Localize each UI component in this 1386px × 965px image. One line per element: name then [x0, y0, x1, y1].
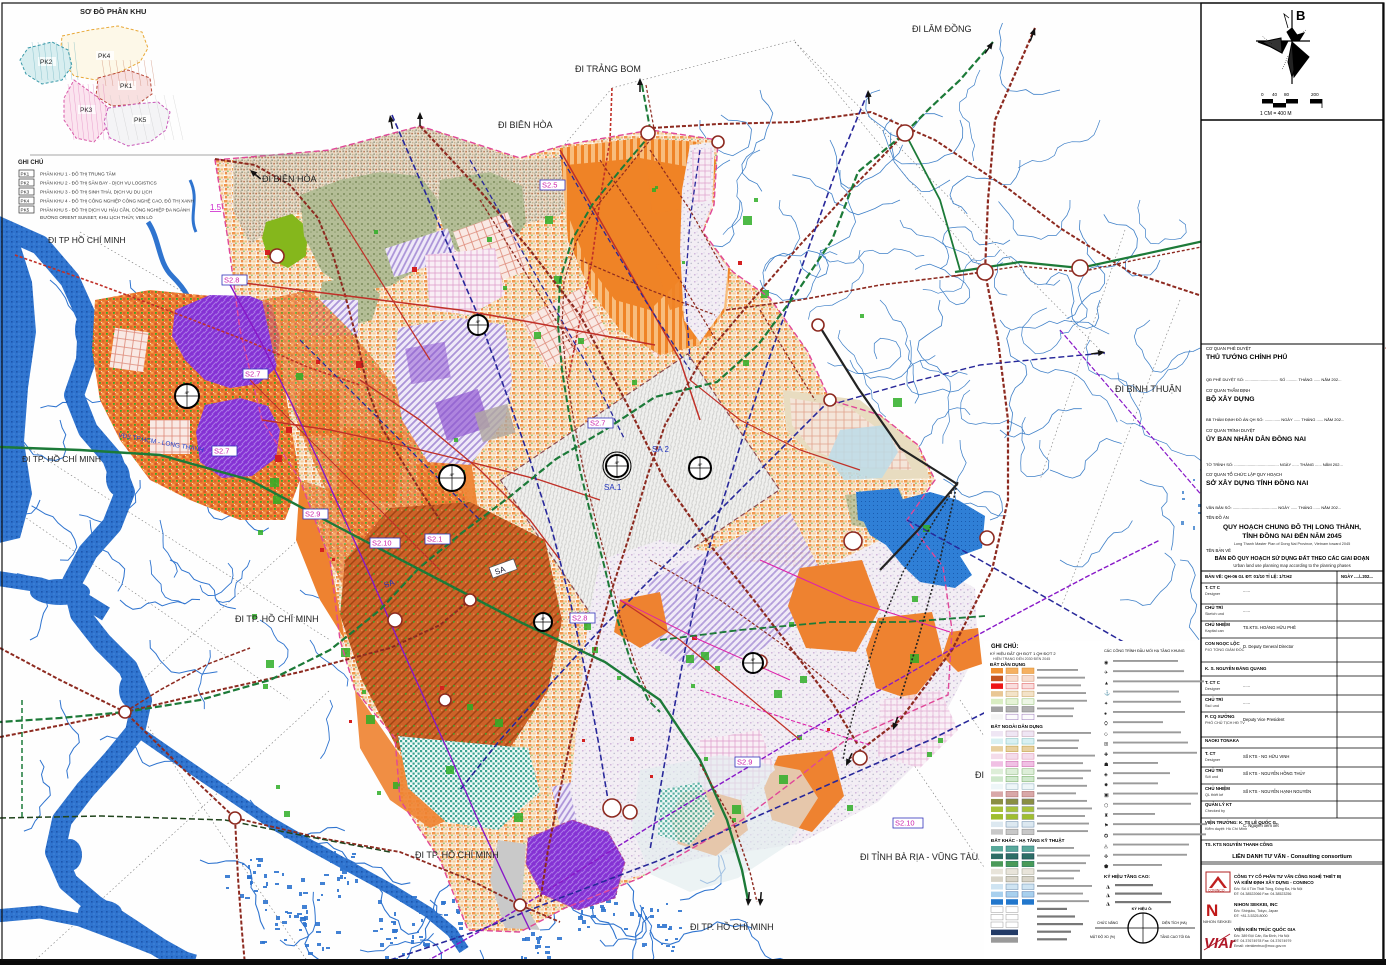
svg-text:ĐT: +81.3.5325.8000: ĐT: +81.3.5325.8000	[1234, 914, 1267, 918]
svg-text:◮: ◮	[1106, 884, 1110, 890]
svg-text:Designer: Designer	[1205, 592, 1221, 596]
svg-text:Urban land use planning map ac: Urban land use planning map according to…	[1233, 563, 1350, 568]
svg-text:PK3: PK3	[21, 190, 30, 195]
svg-text:KÝ HIỆU Ô:: KÝ HIỆU Ô:	[1132, 906, 1153, 911]
svg-text:⚓: ⚓	[1104, 690, 1110, 697]
svg-text:Long Thanh Master Plan of Dong: Long Thanh Master Plan of Dong Nai Provi…	[1234, 542, 1350, 546]
svg-text:CƠ QUAN TRÌNH DUYỆT: CƠ QUAN TRÌNH DUYỆT	[1206, 428, 1256, 433]
svg-text:4F: 4F	[541, 616, 546, 621]
svg-text:NIHON SEKKEI: NIHON SEKKEI	[1203, 919, 1231, 924]
svg-text:VĂN BẢN SỐ: ..................: VĂN BẢN SỐ: ............................…	[1206, 505, 1341, 510]
svg-text:✦: ✦	[1104, 701, 1108, 707]
svg-text:BẢN VẼ: QH-06 GI. ĐT: 01/10: BẢN VẼ: QH-06 GI. ĐT: 01/10 TỈ LỆ: 1/T.H…	[1205, 574, 1292, 579]
svg-text:CHỦ NHIỆM: CHỦ NHIỆM	[1205, 786, 1230, 791]
svg-text:0: 0	[1261, 92, 1264, 97]
svg-text:⬟: ⬟	[1104, 864, 1109, 870]
svg-text:ĐI TRẢNG BOM: ĐI TRẢNG BOM	[575, 63, 641, 74]
svg-text:PK1: PK1	[21, 172, 30, 177]
svg-text:PHÂN KHU 1 - ĐÔ THỊ TRUNG TÂM: PHÂN KHU 1 - ĐÔ THỊ TRUNG TÂM	[40, 171, 116, 177]
svg-text:CHỦ TRÌ: CHỦ TRÌ	[1205, 605, 1223, 610]
svg-text:▣: ▣	[1104, 793, 1109, 799]
svg-text:......: ......	[1243, 608, 1250, 613]
svg-text:PHÂN KHU 3 - ĐÔ THỊ SINH THÁI,: PHÂN KHU 3 - ĐÔ THỊ SINH THÁI, DỊCH VỤ D…	[40, 189, 152, 195]
svg-text:CHỦ TRÌ: CHỦ TRÌ	[1205, 768, 1223, 773]
svg-text:ĐI LÂM ĐỒNG: ĐI LÂM ĐỒNG	[912, 23, 972, 34]
svg-text:T. CT C: T. CT C	[1205, 680, 1221, 685]
svg-text:4F: 4F	[450, 472, 455, 477]
svg-text:DIỆN TÍCH (HA): DIỆN TÍCH (HA)	[1162, 920, 1187, 925]
svg-text:ĐI TP HỒ CHÍ MINH: ĐI TP HỒ CHÍ MINH	[48, 234, 126, 245]
svg-text:S2.7: S2.7	[590, 419, 605, 428]
svg-text:KÝ HIỆU TẦNG CAO:: KÝ HIỆU TẦNG CAO:	[1104, 872, 1150, 879]
svg-text:MẬT ĐỘ XD (%): MẬT ĐỘ XD (%)	[1090, 934, 1115, 939]
svg-text:B: B	[1296, 8, 1305, 23]
svg-text:T. CT: T. CT	[1205, 751, 1216, 756]
svg-text:C. Nguyễn xem xét: C. Nguyễn xem xét	[1243, 823, 1279, 828]
svg-text:1.5: 1.5	[210, 203, 222, 212]
svg-text:TÊN ĐỒ ÁN: TÊN ĐỒ ÁN	[1206, 515, 1229, 520]
svg-text:Kapital can: Kapital can	[1205, 629, 1224, 633]
svg-text:PHÂN KHU 2 - ĐÔ THỊ SÂN BAY -: PHÂN KHU 2 - ĐÔ THỊ SÂN BAY - DỊCH VỤ LO…	[40, 180, 157, 186]
svg-text:ĐI TỈNH BÀ RỊA - VŨNG TÀU: ĐI TỈNH BÀ RỊA - VŨNG TÀU	[860, 851, 978, 862]
svg-text:NGÀY ..../..202...: NGÀY ..../..202...	[1341, 574, 1373, 579]
svg-text:PHÂN KHU 4 - ĐÔ THỊ CÔNG NGHIỆ: PHÂN KHU 4 - ĐÔ THỊ CÔNG NGHIỆP CÔNG NGH…	[40, 197, 194, 204]
svg-text:◇: ◇	[1104, 731, 1108, 737]
svg-text:SA 2: SA 2	[652, 445, 669, 454]
svg-text:PK2: PK2	[21, 181, 30, 186]
svg-text:GHI CHÚ: GHI CHÚ	[18, 159, 43, 166]
svg-text:T. CT C: T. CT C	[1205, 585, 1221, 590]
svg-text:S2.10: S2.10	[895, 819, 915, 828]
svg-text:P.IO TỔNG GIÁM ĐỐC: P.IO TỔNG GIÁM ĐỐC	[1205, 647, 1245, 652]
svg-text:QUẢN LÝ KT: QUẢN LÝ KT	[1205, 802, 1232, 807]
svg-text:80: 80	[1284, 92, 1290, 97]
svg-text:VIỆN KIẾN TRÚC QUỐC GIA: VIỆN KIẾN TRÚC QUỐC GIA	[1234, 925, 1296, 932]
svg-text:1 CM = 400 M: 1 CM = 400 M	[1260, 111, 1292, 117]
svg-text:☗: ☗	[1104, 762, 1109, 768]
svg-text:BỘ XÂY DỰNG: BỘ XÂY DỰNG	[1206, 394, 1255, 403]
svg-text:200: 200	[1311, 92, 1319, 97]
svg-text:PK1: PK1	[120, 83, 133, 90]
svg-text:......: ......	[1243, 588, 1250, 593]
svg-text:NAOKI TONAKA: NAOKI TONAKA	[1205, 738, 1240, 743]
svg-text:S2.7: S2.7	[214, 447, 229, 456]
svg-text:✹: ✹	[1104, 782, 1108, 788]
svg-text:◮: ◮	[1106, 893, 1110, 899]
svg-text:CHỦ NHIỆM: CHỦ NHIỆM	[1205, 622, 1230, 627]
svg-text:THỦ TƯỚNG CHÍNH PHỦ: THỦ TƯỚNG CHÍNH PHỦ	[1206, 352, 1287, 361]
svg-text:VIAr: VIAr	[1204, 935, 1236, 952]
svg-text:✈: ✈	[1104, 670, 1108, 676]
svg-text:GHI CHÚ:: GHI CHÚ:	[991, 643, 1018, 650]
svg-text:Designer: Designer	[1205, 687, 1221, 691]
svg-text:PK5: PK5	[134, 117, 147, 124]
svg-text:S2.9: S2.9	[737, 758, 752, 767]
svg-text:TS. KTS NGUYỄN THANH CÔNG: TS. KTS NGUYỄN THANH CÔNG	[1205, 842, 1273, 847]
svg-text:Số KTS - NGUYỄN HỒNG THỦY: Số KTS - NGUYỄN HỒNG THỦY	[1243, 771, 1305, 776]
svg-text:PK4: PK4	[21, 199, 30, 204]
svg-text:40: 40	[1272, 92, 1278, 97]
svg-text:K. S. NGUYỄN ĐĂNG QUANG: K. S. NGUYỄN ĐĂNG QUANG	[1205, 666, 1267, 671]
svg-text:QĐ PHÊ DUYỆT SỐ: .............: QĐ PHÊ DUYỆT SỐ: .......................…	[1206, 377, 1341, 382]
svg-text:✪: ✪	[1104, 833, 1108, 839]
svg-text:CÔNG TY CỔ PHẦN TƯ VẤN CÔNG NG: CÔNG TY CỔ PHẦN TƯ VẤN CÔNG NGHỆ THIẾT B…	[1234, 874, 1341, 879]
svg-text:N: N	[1206, 901, 1218, 920]
svg-text:◉: ◉	[1104, 660, 1109, 666]
svg-text:TÊN BẢN VẼ: TÊN BẢN VẼ	[1206, 548, 1231, 553]
svg-text:TẦNG CAO TỐI ĐA: TẦNG CAO TỐI ĐA	[1160, 934, 1191, 939]
svg-text:ĐẤT DÂN DỤNG: ĐẤT DÂN DỤNG	[990, 661, 1026, 667]
svg-text:TỜ TRÌNH SỐ: .................: TỜ TRÌNH SỐ: ...........................…	[1206, 462, 1343, 467]
svg-text:S2.8: S2.8	[572, 614, 587, 623]
svg-text:S2.9: S2.9	[305, 510, 320, 519]
svg-text:⚑: ⚑	[1104, 823, 1108, 829]
svg-text:......: ......	[1243, 683, 1250, 688]
svg-text:CÁC CÔNG TRÌNH ĐẦU MỐI HẠ TẦNG: CÁC CÔNG TRÌNH ĐẦU MỐI HẠ TẦNG KHUNG	[1104, 648, 1185, 653]
svg-text:✚: ✚	[1104, 752, 1108, 758]
svg-text:CONINCO: CONINCO	[1208, 889, 1225, 893]
svg-text:ĐT: 04.37674978 Fax: 04.37674: ĐT: 04.37674978 Fax: 04.37674979	[1234, 939, 1291, 943]
svg-text:4F: 4F	[185, 390, 190, 395]
svg-text:CHỦ TRÌ: CHỦ TRÌ	[1205, 697, 1223, 702]
svg-text:4F: 4F	[476, 319, 481, 324]
svg-text:Số KTS - NGUYỄN HẠNH NGUYÊN: Số KTS - NGUYỄN HẠNH NGUYÊN	[1243, 789, 1311, 794]
svg-text:⊞: ⊞	[1104, 742, 1108, 748]
svg-text:♜: ♜	[1104, 813, 1108, 819]
svg-text:✜: ✜	[1104, 854, 1108, 860]
svg-text:PHÓ CHỦ TỊCH HĐ TV: PHÓ CHỦ TỊCH HĐ TV	[1205, 720, 1245, 725]
svg-text:QL thiết kế: QL thiết kế	[1205, 793, 1224, 797]
svg-text:S2.1: S2.1	[427, 535, 442, 544]
svg-text:QUY HOẠCH CHUNG ĐÔ THỊ LONG TH: QUY HOẠCH CHUNG ĐÔ THỊ LONG THÀNH,	[1223, 522, 1361, 531]
svg-text:P. CQ XƯỞNG: P. CQ XƯỞNG	[1205, 714, 1235, 719]
svg-text:Số KTS - NG HỮU VINH: Số KTS - NG HỮU VINH	[1243, 754, 1289, 759]
svg-text:Ssố und: Ssố und	[1205, 704, 1219, 708]
svg-text:S2.7: S2.7	[245, 370, 260, 379]
svg-text:TS.KTS. HOÀNG HỮU PHÊ: TS.KTS. HOÀNG HỮU PHÊ	[1243, 625, 1296, 630]
svg-text:D. Deputy General Director: D. Deputy General Director	[1243, 644, 1294, 649]
svg-text:CƠ QUAN PHÊ DUYỆT: CƠ QUAN PHÊ DUYỆT	[1206, 346, 1251, 351]
svg-text:Designer: Designer	[1205, 758, 1221, 762]
svg-text:ĐI: ĐI	[975, 770, 984, 780]
svg-text:SA.1: SA.1	[604, 483, 622, 492]
svg-text:BẢN ĐỒ QUY HOẠCH SỬ DỤNG ĐẤT T: BẢN ĐỒ QUY HOẠCH SỬ DỤNG ĐẤT THEO CÁC GI…	[1215, 555, 1370, 562]
svg-text:ĐI TP. HỒ CHÍ MINH: ĐI TP. HỒ CHÍ MINH	[415, 849, 499, 860]
svg-text:VÀ KIỂM ĐỊNH XÂY DỰNG - CONINC: VÀ KIỂM ĐỊNH XÂY DỰNG - CONINCO	[1234, 880, 1314, 885]
svg-text:ĐI TP. HỒ CHÍ MINH: ĐI TP. HỒ CHÍ MINH	[235, 613, 319, 624]
svg-text:▲: ▲	[1104, 680, 1109, 686]
svg-text:SƠ ĐỒ PHÂN KHU: SƠ ĐỒ PHÂN KHU	[80, 6, 146, 16]
svg-text:◮: ◮	[1106, 901, 1110, 907]
svg-text:BB THẨM ĐỊNH ĐỒ ÁN QH SỐ: ....: BB THẨM ĐỊNH ĐỒ ÁN QH SỐ: ..............…	[1206, 417, 1344, 422]
svg-text:Đ/c: Số 4 Tôn Thất Tùng, Đống: Đ/c: Số 4 Tôn Thất Tùng, Đống Đa, Hà Nội	[1234, 887, 1303, 891]
svg-text:PK4: PK4	[98, 53, 111, 60]
svg-text:⛭: ⛭	[1104, 721, 1108, 727]
svg-text:ĐƯỜNG ORIENT SUNSET, KHU LỊCH: ĐƯỜNG ORIENT SUNSET, KHU LỊCH THỦY, VEN …	[40, 214, 153, 220]
svg-text:......: ......	[1243, 700, 1250, 705]
svg-text:S2.5: S2.5	[542, 181, 557, 190]
svg-text:4F: 4F	[698, 462, 703, 467]
svg-text:◈: ◈	[1104, 772, 1108, 778]
svg-text:LIÊN DANH TƯ VẤN - Consulting: LIÊN DANH TƯ VẤN - Consulting consortium	[1232, 852, 1352, 860]
svg-text:KÝ HIỆU ĐẤT QH ĐỢT 1: KÝ HIỆU ĐẤT QH ĐỢT 1 QH ĐỢT 2	[990, 651, 1056, 656]
svg-text:4F: 4F	[751, 657, 756, 662]
svg-text:HIỆN TRẠNG ĐẾN 2030: HIỆN TRẠNG ĐẾN 2030 ĐẾN 2045	[993, 656, 1050, 661]
svg-text:Đ/c: Shinjuku, Tokyo, Japan: Đ/c: Shinjuku, Tokyo, Japan	[1234, 909, 1278, 913]
svg-text:CHỨC NĂNG: CHỨC NĂNG	[1097, 920, 1118, 925]
svg-text:Checked by: Checked by	[1205, 809, 1225, 813]
svg-text:◬: ◬	[1104, 844, 1108, 850]
svg-text:Kiểm duyệt: Hồ Chí Minh: Kiểm duyệt: Hồ Chí Minh	[1205, 827, 1247, 831]
svg-text:CON NGỌC LỘC: CON NGỌC LỘC	[1205, 641, 1240, 646]
svg-text:⬡: ⬡	[1104, 803, 1108, 809]
svg-text:ĐI BIÊN HÒA: ĐI BIÊN HÒA	[262, 174, 317, 184]
svg-text:Đ/c: 389 Đội Cấn, Ba Đình, Hà: Đ/c: 389 Đội Cấn, Ba Đình, Hà Nội	[1234, 934, 1290, 938]
svg-text:Sketch und: Sketch und	[1205, 612, 1224, 616]
svg-text:●: ●	[1104, 711, 1107, 717]
svg-text:NIHON SEKKEI, INC: NIHON SEKKEI, INC	[1234, 902, 1278, 907]
svg-text:S2.8: S2.8	[224, 276, 239, 285]
svg-text:S2.10: S2.10	[372, 539, 392, 548]
svg-text:ĐI BIÊN HÒA: ĐI BIÊN HÒA	[498, 120, 553, 130]
svg-text:Email: vienkientruc@moc.gov.vn: Email: vienkientruc@moc.gov.vn	[1234, 944, 1286, 948]
svg-text:CƠ QUAN THẨM ĐỊNH: CƠ QUAN THẨM ĐỊNH	[1206, 388, 1250, 393]
svg-text:ĐI TP. HỒ CHÍ MINH: ĐI TP. HỒ CHÍ MINH	[22, 453, 101, 464]
svg-text:Sốt und: Sốt und	[1205, 775, 1218, 779]
svg-text:ĐẤT NGOÀI DÂN DỤNG: ĐẤT NGOÀI DÂN DỤNG	[991, 723, 1043, 729]
svg-text:4F: 4F	[615, 460, 620, 465]
svg-text:ĐI TP. HỒ CHÍ MINH: ĐI TP. HỒ CHÍ MINH	[690, 921, 774, 932]
svg-text:ĐẤT KHÁC - HẠ TẦNG KỸ THUẬT: ĐẤT KHÁC - HẠ TẦNG KỸ THUẬT	[991, 837, 1065, 843]
svg-text:ĐI BÌNH THUẬN: ĐI BÌNH THUẬN	[1115, 384, 1181, 394]
svg-text:CƠ QUAN TỔ CHỨC LẬP QUY HOẠCH: CƠ QUAN TỔ CHỨC LẬP QUY HOẠCH	[1206, 472, 1282, 477]
svg-text:ĐT: 04.38522066 Fax: 04.3852: ĐT: 04.38522066 Fax: 04.38523256	[1234, 892, 1291, 896]
svg-text:PHÂN KHU 5 - ĐÔ THỊ DỊCH VỤ HẬ: PHÂN KHU 5 - ĐÔ THỊ DỊCH VỤ HẬU CẦN, CÔN…	[40, 206, 190, 213]
svg-text:PK5: PK5	[21, 208, 30, 213]
svg-text:Deputy Vice President: Deputy Vice President	[1243, 717, 1285, 722]
